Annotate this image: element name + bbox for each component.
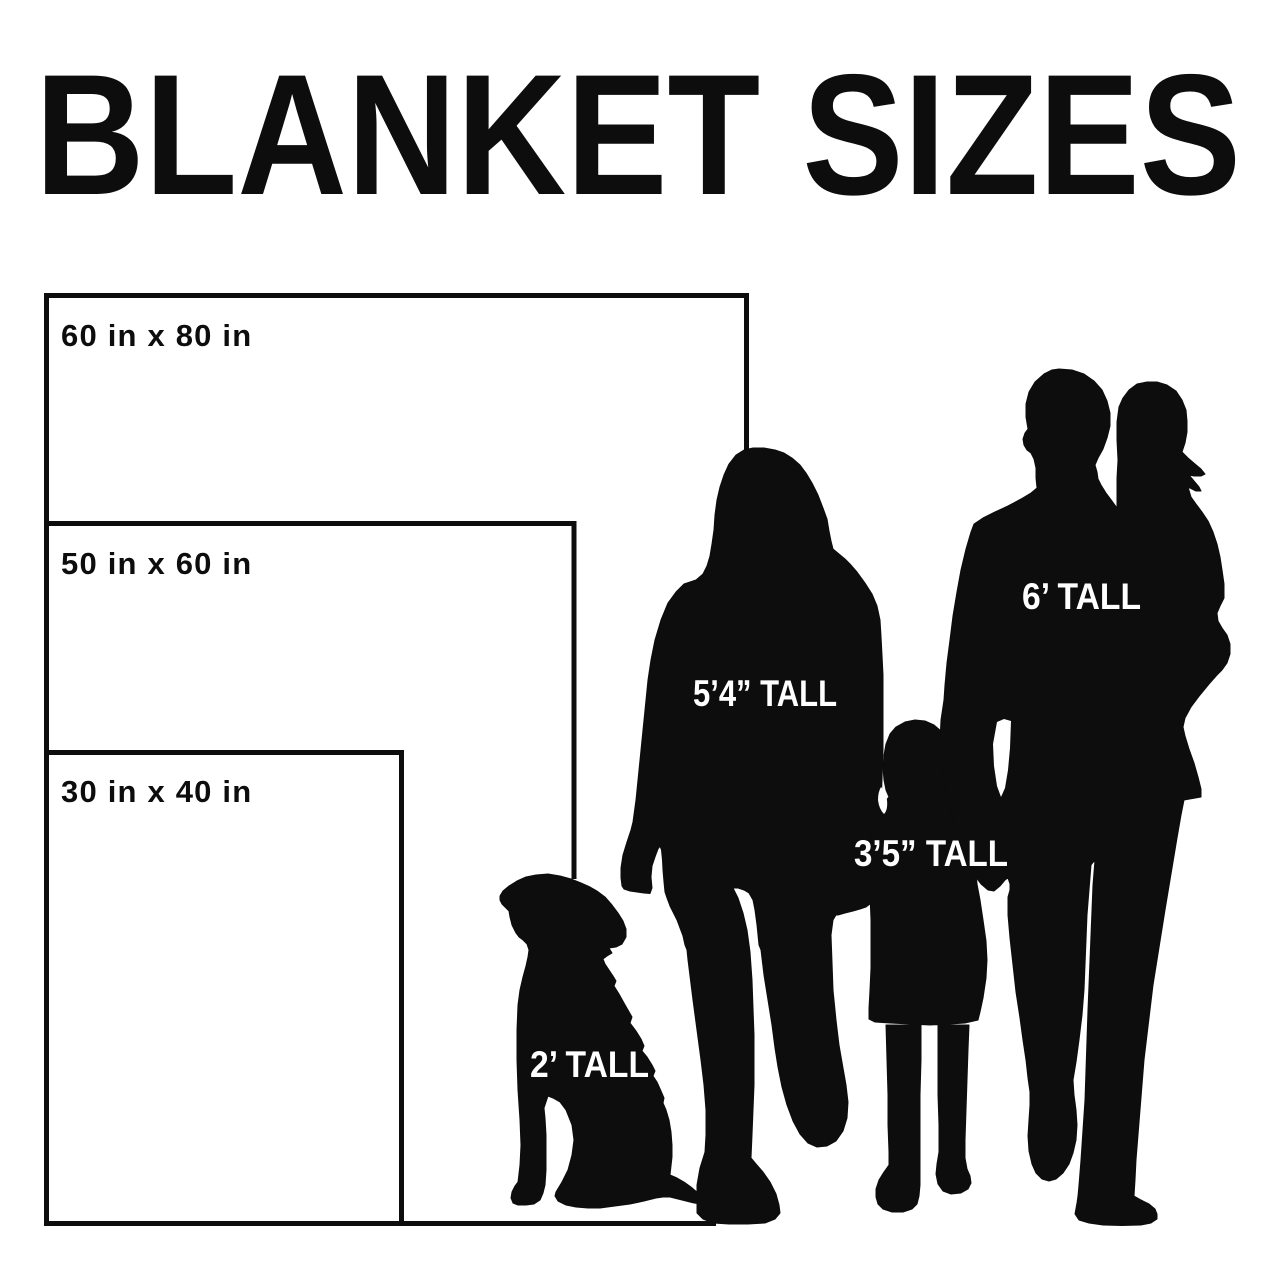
svg-text:6’ TALL: 6’ TALL [1022, 576, 1141, 617]
svg-text:3’5” TALL: 3’5” TALL [854, 833, 1008, 874]
svg-text:60 in x 80 in: 60 in x 80 in [61, 318, 252, 353]
svg-text:BLANKET SIZES: BLANKET SIZES [35, 39, 1241, 231]
svg-text:5’4” TALL: 5’4” TALL [693, 673, 837, 714]
svg-text:2’ TALL: 2’ TALL [530, 1044, 649, 1085]
svg-text:30 in x 40 in: 30 in x 40 in [61, 774, 252, 809]
svg-text:50 in x 60 in: 50 in x 60 in [61, 546, 252, 581]
